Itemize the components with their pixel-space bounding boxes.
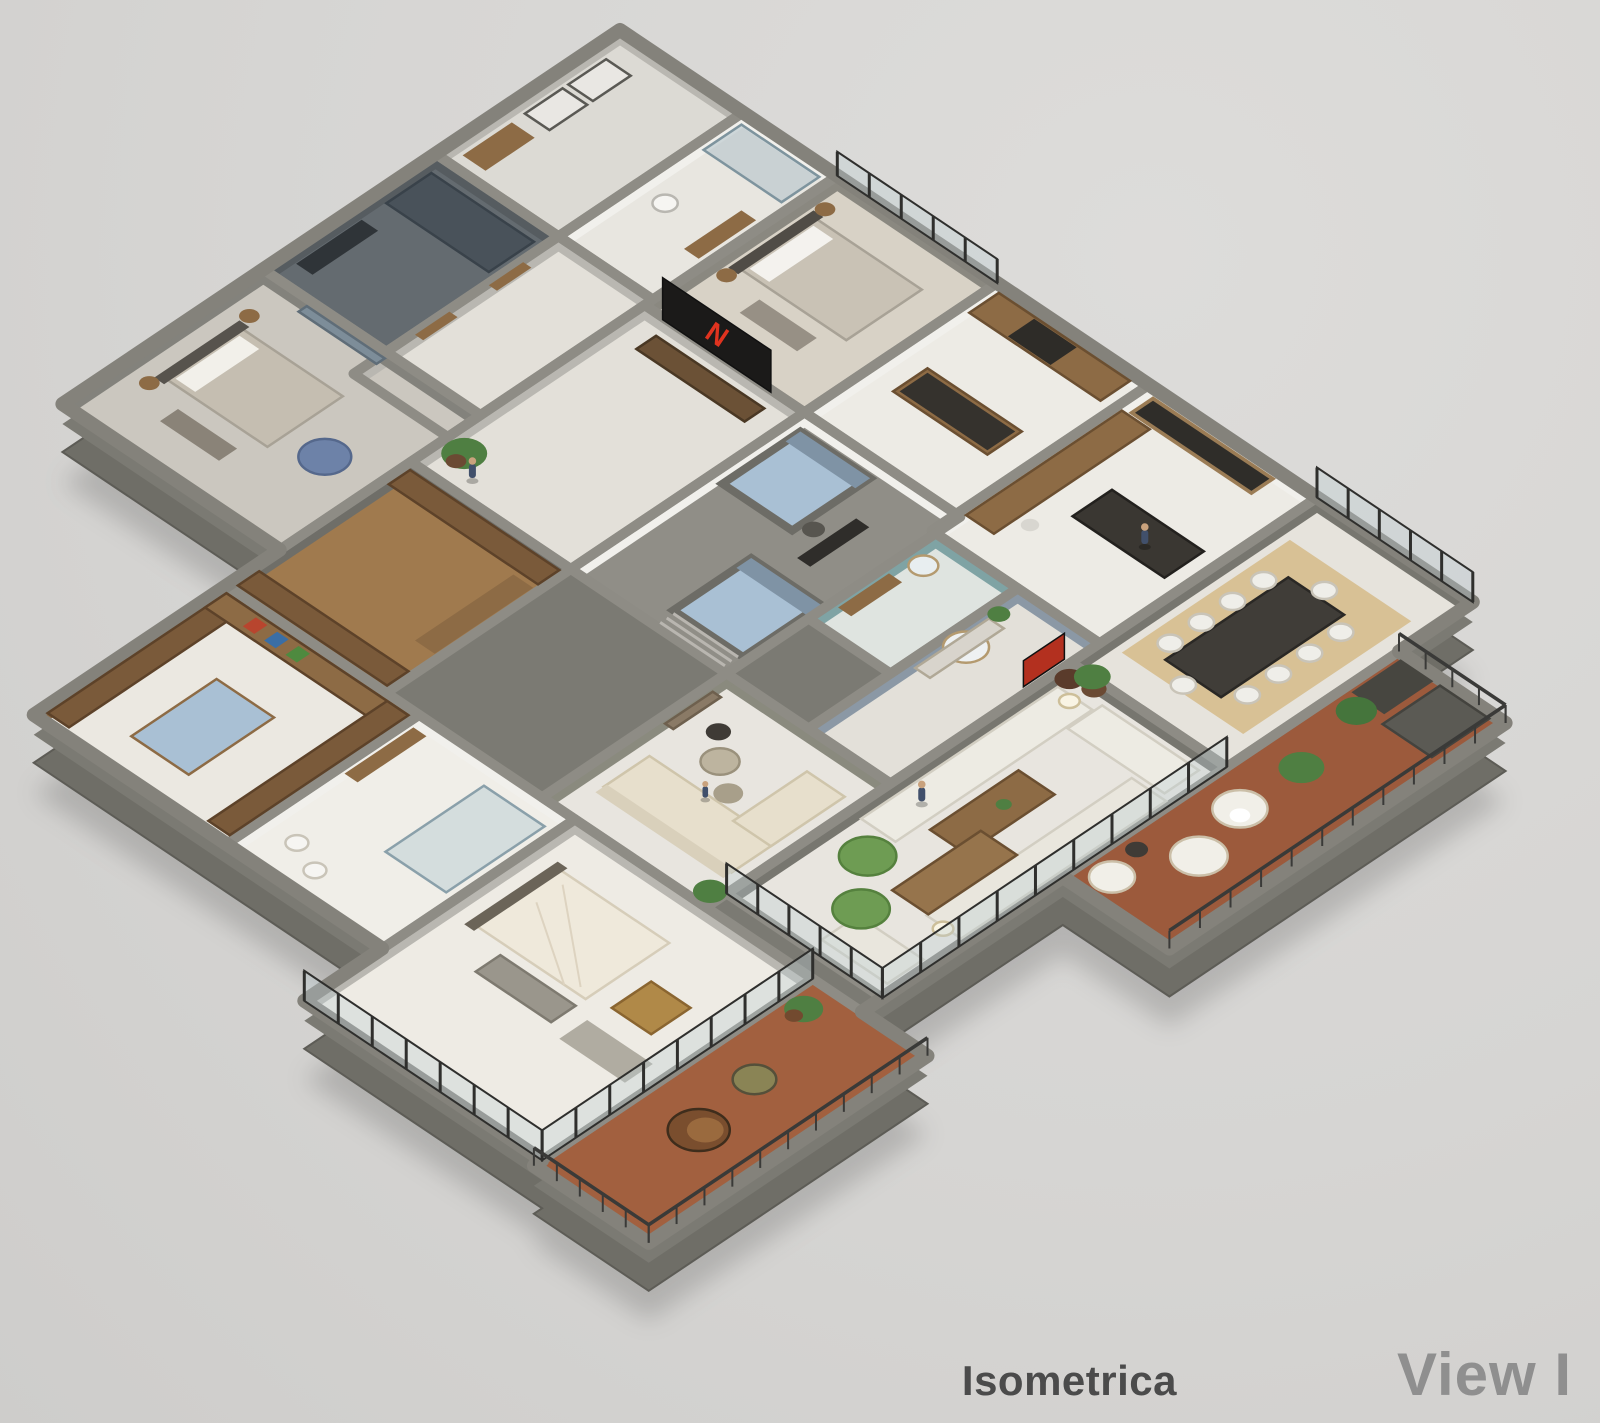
round-lounger bbox=[1170, 837, 1228, 876]
person-kitchen-shadow bbox=[1139, 544, 1151, 550]
toilet-master bbox=[285, 835, 308, 851]
dining-chair bbox=[1328, 624, 1353, 641]
round-table bbox=[700, 748, 739, 775]
child-family-room-head bbox=[702, 781, 708, 787]
nightstand-b1 bbox=[239, 309, 260, 323]
lounger-cushion bbox=[1230, 808, 1251, 822]
person-lounge-body bbox=[469, 464, 476, 478]
dining-chair bbox=[1189, 614, 1214, 631]
table-plant bbox=[996, 799, 1012, 810]
round-lounger bbox=[1089, 861, 1135, 892]
person-living-head bbox=[918, 781, 926, 789]
green-swivel-chair bbox=[832, 889, 890, 928]
desk-chair bbox=[802, 522, 825, 538]
kitchen-sink bbox=[1021, 519, 1039, 531]
floorplan-canvas: N Isometrica View I bbox=[0, 0, 1600, 1423]
person-living-body bbox=[918, 787, 925, 801]
plant-lounge-pot bbox=[446, 454, 467, 468]
dining-chair bbox=[1158, 635, 1183, 652]
side-table bbox=[1125, 842, 1148, 858]
person-kitchen-head bbox=[1141, 523, 1149, 531]
dining-chair bbox=[1171, 676, 1196, 693]
foyer-plant bbox=[987, 606, 1010, 622]
round-table bbox=[713, 783, 743, 803]
person-kitchen-body bbox=[1141, 530, 1148, 544]
dining-chair bbox=[1312, 582, 1337, 599]
nightstand-a2 bbox=[716, 268, 737, 282]
powder-mirror bbox=[908, 556, 938, 576]
footer: Isometrica View I bbox=[962, 1340, 1572, 1409]
bidet-master bbox=[303, 863, 326, 879]
child-family-room-shadow bbox=[700, 798, 710, 803]
dining-chair bbox=[1297, 645, 1322, 662]
egg-chair-seat bbox=[687, 1118, 724, 1143]
person-lounge-head bbox=[469, 457, 477, 465]
toilet-a bbox=[652, 195, 677, 212]
terrace-plant bbox=[1278, 752, 1324, 783]
green-swivel-chair bbox=[839, 837, 897, 876]
family-plant bbox=[693, 880, 728, 903]
floor-lamp bbox=[1059, 694, 1080, 708]
dining-chair bbox=[1235, 686, 1260, 703]
dining-chair bbox=[1251, 572, 1276, 589]
pouf bbox=[706, 723, 731, 740]
view-label: View I bbox=[1397, 1340, 1572, 1409]
terrace-plant-pot bbox=[785, 1009, 803, 1021]
person-living-shadow bbox=[916, 801, 928, 807]
person-lounge-shadow bbox=[466, 478, 478, 484]
terrace-plant bbox=[1336, 697, 1377, 725]
dining-chair bbox=[1266, 665, 1291, 682]
plant-living bbox=[1074, 664, 1111, 689]
brand-label: Isometrica bbox=[962, 1357, 1177, 1405]
dining-chair bbox=[1220, 593, 1245, 610]
child-family-room-body bbox=[702, 786, 708, 797]
nightstand-b2 bbox=[139, 376, 160, 390]
floorplan-svg: N bbox=[0, 0, 1600, 1423]
blue-armchair bbox=[298, 439, 351, 475]
nightstand-a1 bbox=[815, 202, 836, 216]
terrace-table bbox=[733, 1065, 777, 1095]
isometric-floorplan: N bbox=[34, 30, 1506, 1321]
